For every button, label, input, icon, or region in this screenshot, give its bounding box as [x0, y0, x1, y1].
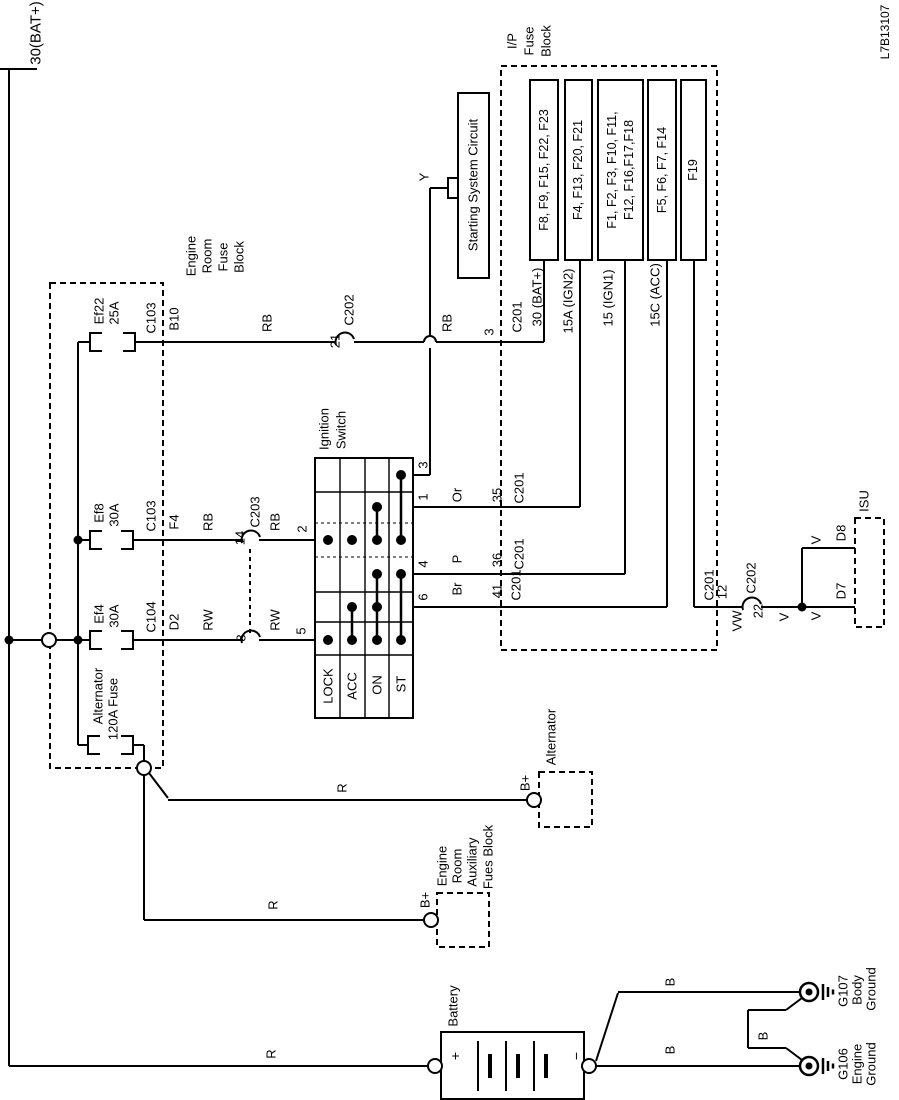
starting-system-circuit-stub: [448, 178, 458, 198]
fuse-group-3a: F1, F2, F3, F10, F11,: [605, 111, 619, 228]
ground-g106-ground: Ground: [864, 1042, 879, 1085]
connector-c104-name: C104: [144, 601, 159, 632]
switch-terminal-4: 4: [416, 560, 431, 567]
fuse-feed-15c-acc: 15C (ACC): [648, 263, 663, 327]
connector-c203-name: C203: [248, 496, 263, 527]
fuse-ef4-label: Ef4: [92, 604, 107, 624]
connector-c202-pin-22: 22: [751, 604, 766, 618]
switch-contact-dot: [372, 602, 382, 612]
fuse-alternator-120a: [121, 736, 133, 754]
fuse-alternator-120a: [88, 736, 100, 754]
connector-c201-pin-3: 3: [482, 328, 497, 335]
fuse-ef8-label: Ef8: [92, 503, 107, 523]
connector-c203-pin-14: 14: [233, 531, 248, 545]
ground-g106-label: G106: [836, 1048, 851, 1080]
fuse-ef4: [90, 631, 102, 649]
isu-pin-d8: D8: [834, 525, 849, 542]
connector-c201-name-1: C201: [510, 301, 525, 332]
ignition-switch-label-2: Switch: [334, 411, 349, 449]
fuse-ef22-label: Ef22: [92, 298, 107, 325]
switch-pos-acc: ACC: [345, 672, 360, 699]
battery-label: Battery: [446, 985, 461, 1027]
aux-fuse-block-label-2: Room: [450, 849, 465, 884]
fuse-feed-15-ign1: 15 (IGN1): [601, 269, 616, 326]
switch-contact-dot: [323, 635, 333, 645]
wire-rb-4: RB: [268, 513, 283, 531]
isu-pin-d7: D7: [834, 583, 849, 600]
aux-fuse-block-box: [437, 893, 489, 947]
switch-contact-dot: [347, 635, 357, 645]
wire-rw-1: RW: [201, 609, 216, 631]
connector-c201-pin-36: 36: [490, 553, 505, 567]
switch-pos-on: ON: [370, 675, 385, 695]
fuse-ef8: [90, 531, 102, 549]
fuse-ef4: [121, 631, 133, 649]
engine-room-fuse-block-label-3: Fuse: [216, 243, 231, 272]
aux-fuse-block-label-3: Auxiliary: [465, 837, 480, 887]
alternator-fuse-label-1: Alternator: [91, 667, 106, 724]
ip-fuse-block-label-1: I/P: [505, 33, 520, 49]
doc-code: L7B13107: [878, 4, 892, 59]
fuse-ef8-rating: 30A: [107, 503, 122, 526]
terminal-circle: [424, 913, 438, 927]
connector-c103-b10-name: C103: [144, 302, 159, 333]
alternator-terminal: B+: [518, 775, 533, 791]
switch-contact-dot: [396, 569, 406, 579]
ground-g107-body: Body: [850, 975, 865, 1005]
wire-br: Br: [450, 582, 465, 596]
switch-contact-dot: [372, 569, 382, 579]
aux-block-terminal: B+: [418, 892, 433, 908]
supply-label: 30(BAT+): [28, 1, 45, 65]
wire-vw: VW: [730, 610, 745, 632]
aux-fuse-block-label-4: Fues Block: [481, 824, 496, 889]
wiring-diagram-page: 30(BAT+)L7B13107EngineRoomFuseBlockEf222…: [0, 0, 899, 1100]
engine-room-fuse-block-label-2: Room: [200, 239, 215, 274]
wire-y: Y: [417, 172, 432, 181]
wire-r-2: R: [266, 900, 281, 909]
switch-pos-lock: LOCK: [321, 668, 336, 704]
wire: [149, 773, 168, 798]
connector-c201-name-3: C201: [512, 538, 527, 569]
fuse-ef22: [123, 333, 135, 351]
wire-v-2: V: [809, 535, 824, 544]
connector-c103-pin-b10: B10: [167, 307, 182, 330]
fuse-ef8: [121, 531, 133, 549]
connector-c202-name-1: C202: [342, 294, 357, 325]
connector-c202-name-2: C202: [744, 562, 759, 593]
switch-terminal-2: 2: [295, 525, 310, 532]
wire-v-3: V: [809, 611, 824, 620]
wire-r-1: R: [335, 783, 350, 792]
ground-g107-ground: Ground: [864, 967, 879, 1010]
terminal-circle: [527, 793, 541, 807]
engine-room-fuse-block-label-1: Engine: [184, 236, 199, 276]
ground-g107-icon: [806, 989, 813, 996]
fuse-feed-15a-ign2: 15A (IGN2): [561, 268, 576, 333]
connector-c201-name-2: C201: [512, 472, 527, 503]
alternator-label: Alternator: [544, 708, 559, 765]
terminal-circle: [42, 633, 56, 647]
junction-dot: [74, 536, 83, 545]
wire-rw-2: RW: [268, 609, 283, 631]
switch-contact-dot: [396, 635, 406, 645]
fuse-group-1: F8, F9, F15, F22, F23: [537, 109, 551, 231]
connector-c201-pin-12: 12: [715, 585, 730, 599]
switch-terminal-3: 3: [416, 461, 431, 468]
switch-contact-dot: [372, 635, 382, 645]
switch-contact-dot: [323, 535, 333, 545]
starting-system-circuit-label: Starting System Circuit: [466, 119, 481, 252]
wire-v-1: V: [777, 612, 792, 621]
junction-dot: [798, 603, 807, 612]
fuse-ef22-rating: 25A: [107, 301, 122, 324]
connector-c203-pin-8: 8: [234, 634, 249, 641]
wire-or: Or: [450, 487, 465, 502]
ip-fuse-block-label-3: Block: [539, 25, 554, 57]
wire-rb-1: RB: [260, 314, 275, 332]
wire-b-2: B: [663, 1046, 678, 1055]
connector-c103-pin-f4: F4: [167, 514, 182, 529]
wire: [596, 993, 618, 1061]
isu-box: [855, 518, 884, 627]
wire-rb-2: RB: [440, 314, 455, 332]
fuse-ef4-rating: 30A: [107, 604, 122, 627]
switch-contact-dot: [372, 502, 382, 512]
battery-box: [441, 1032, 584, 1099]
junction-dot: [74, 636, 83, 645]
alternator-box: [539, 772, 592, 827]
connector-c201-name-4: C201: [509, 569, 524, 600]
connector-c104-pin-d2: D2: [167, 614, 182, 631]
battery-plus: +: [447, 1052, 463, 1060]
isu-label: ISU: [857, 490, 872, 512]
terminal-circle: [582, 1059, 596, 1073]
fuse-feed-30-bat: 30 (BAT+): [530, 268, 545, 327]
switch-pos-st: ST: [394, 676, 409, 693]
switch-contact-dot: [396, 535, 406, 545]
connector-c103-f4-name: C103: [144, 500, 159, 531]
wire: [786, 1048, 802, 1060]
fuse-group-3b: F12, F16,F17,F18: [622, 120, 636, 220]
terminal-circle: [137, 761, 151, 775]
engine-room-fuse-block-label-4: Block: [232, 241, 247, 273]
wire-b-3: B: [756, 1032, 771, 1041]
aux-fuse-block-label-1: Engine: [435, 846, 450, 886]
wire: [786, 998, 802, 1010]
ip-fuse-block-label-2: Fuse: [522, 27, 537, 56]
switch-contact-dot: [347, 535, 357, 545]
ignition-switch-label-1: Ignition: [317, 408, 332, 450]
fuse-group-2: F4, F13, F20, F21: [571, 120, 585, 220]
battery-minus: −: [568, 1052, 584, 1060]
ground-g106-engine: Engine: [850, 1044, 865, 1084]
wire-r-3: R: [264, 1049, 279, 1058]
connector-c201-pin-41: 41: [490, 584, 505, 598]
junction-dot: [5, 636, 14, 645]
fuse-ef22: [90, 333, 102, 351]
wire-p: P: [450, 555, 465, 564]
switch-terminal-6: 6: [416, 593, 431, 600]
wire-b-1: B: [663, 978, 678, 987]
wire-crossover: [424, 336, 436, 342]
fuse-group-5: F19: [686, 159, 700, 181]
connector-c201-pin-35: 35: [490, 488, 505, 502]
switch-contact-dot: [347, 602, 357, 612]
terminal-circle: [428, 1059, 442, 1073]
connector-c202-pin-21: 21: [328, 334, 343, 348]
switch-contact-dot: [396, 470, 406, 480]
fuse-group-4: F5, F6, F7, F14: [655, 127, 669, 213]
ground-g106-icon: [806, 1063, 813, 1070]
alternator-fuse-label-2: 120A Fuse: [106, 678, 121, 740]
ground-g107-label: G107: [836, 975, 851, 1007]
wire-rb-3: RB: [201, 513, 216, 531]
wiring-diagram: 30(BAT+)L7B13107EngineRoomFuseBlockEf222…: [0, 0, 899, 1100]
switch-terminal-1: 1: [416, 493, 431, 500]
switch-terminal-5: 5: [294, 627, 309, 634]
switch-contact-dot: [372, 535, 382, 545]
